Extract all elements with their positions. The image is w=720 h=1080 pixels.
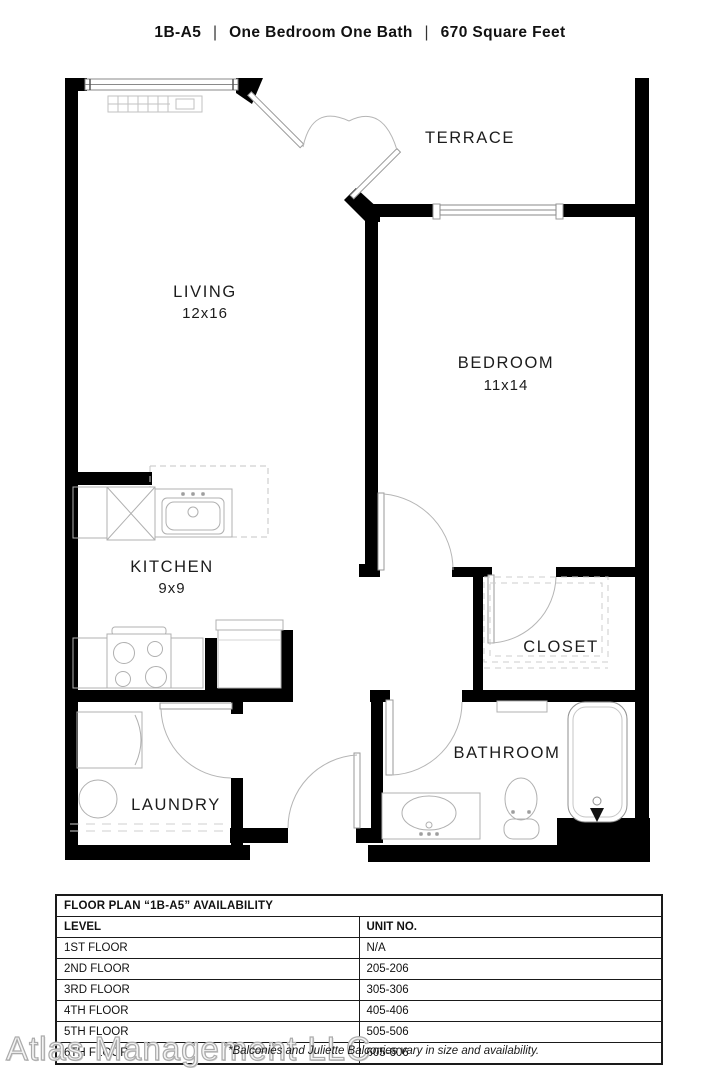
laundry-label: LAUNDRY bbox=[131, 796, 221, 814]
level-cell: 3RD FLOOR bbox=[56, 980, 359, 1001]
table-row: 4TH FLOOR 405-406 bbox=[56, 1001, 662, 1022]
level-cell: 1ST FLOOR bbox=[56, 938, 359, 959]
washer bbox=[77, 712, 142, 768]
kitchen-sink bbox=[155, 489, 232, 537]
terrace-label: TERRACE bbox=[425, 129, 515, 147]
unit-cell: 505-506 bbox=[359, 1022, 662, 1043]
unit-cell: 205-206 bbox=[359, 959, 662, 980]
level-cell: 4TH FLOOR bbox=[56, 1001, 359, 1022]
table-row: 3RD FLOOR 305-306 bbox=[56, 980, 662, 1001]
living-dims: 12x16 bbox=[182, 305, 228, 322]
kitchen-lower-counter bbox=[73, 620, 283, 688]
table-row: 2ND FLOOR 205-206 bbox=[56, 959, 662, 980]
living-window bbox=[85, 79, 238, 90]
unit-cell: 405-406 bbox=[359, 1001, 662, 1022]
kitchen-dims: 9x9 bbox=[158, 580, 185, 597]
bathroom-vanity bbox=[382, 793, 480, 839]
bathroom-door bbox=[386, 700, 462, 775]
bathroom-fixtures bbox=[382, 701, 627, 839]
column-header-unit: UNIT NO. bbox=[359, 917, 662, 938]
bedroom-window bbox=[433, 204, 563, 219]
living-label: LIVING bbox=[173, 283, 237, 301]
bedroom-dims: 11x14 bbox=[484, 377, 529, 394]
dishwasher bbox=[216, 620, 283, 688]
table-title-row: FLOOR PLAN “1B-A5” AVAILABILITY bbox=[56, 895, 662, 917]
closet-label: CLOSET bbox=[523, 638, 599, 656]
balcony-disclaimer: *Balconies and Juliette Balconies vary i… bbox=[228, 1045, 539, 1057]
toilet bbox=[504, 778, 539, 839]
stove bbox=[107, 627, 171, 688]
table-row: 1ST FLOOR N/A bbox=[56, 938, 662, 959]
medicine-shelf bbox=[497, 701, 547, 712]
unit-cell: 305-306 bbox=[359, 980, 662, 1001]
bedroom-label: BEDROOM bbox=[458, 354, 554, 372]
unit-cell: N/A bbox=[359, 938, 662, 959]
table-header-row: LEVEL UNIT NO. bbox=[56, 917, 662, 938]
fridge bbox=[107, 487, 155, 540]
terrace-french-doors bbox=[248, 92, 401, 199]
level-cell: 2ND FLOOR bbox=[56, 959, 359, 980]
table-title: FLOOR PLAN “1B-A5” AVAILABILITY bbox=[56, 895, 662, 917]
bedroom-door bbox=[378, 493, 453, 570]
entry-door bbox=[288, 753, 360, 828]
column-header-level: LEVEL bbox=[56, 917, 359, 938]
living-baseboard-unit bbox=[108, 96, 202, 112]
laundry-door bbox=[160, 703, 232, 778]
bathtub bbox=[568, 702, 627, 822]
closet-door bbox=[488, 575, 556, 643]
floorplan-page: 1B-A5 | One Bedroom One Bath | 670 Squar… bbox=[0, 0, 720, 1080]
dryer bbox=[79, 780, 117, 818]
bathroom-label: BATHROOM bbox=[454, 744, 561, 762]
kitchen-label: KITCHEN bbox=[130, 558, 214, 576]
